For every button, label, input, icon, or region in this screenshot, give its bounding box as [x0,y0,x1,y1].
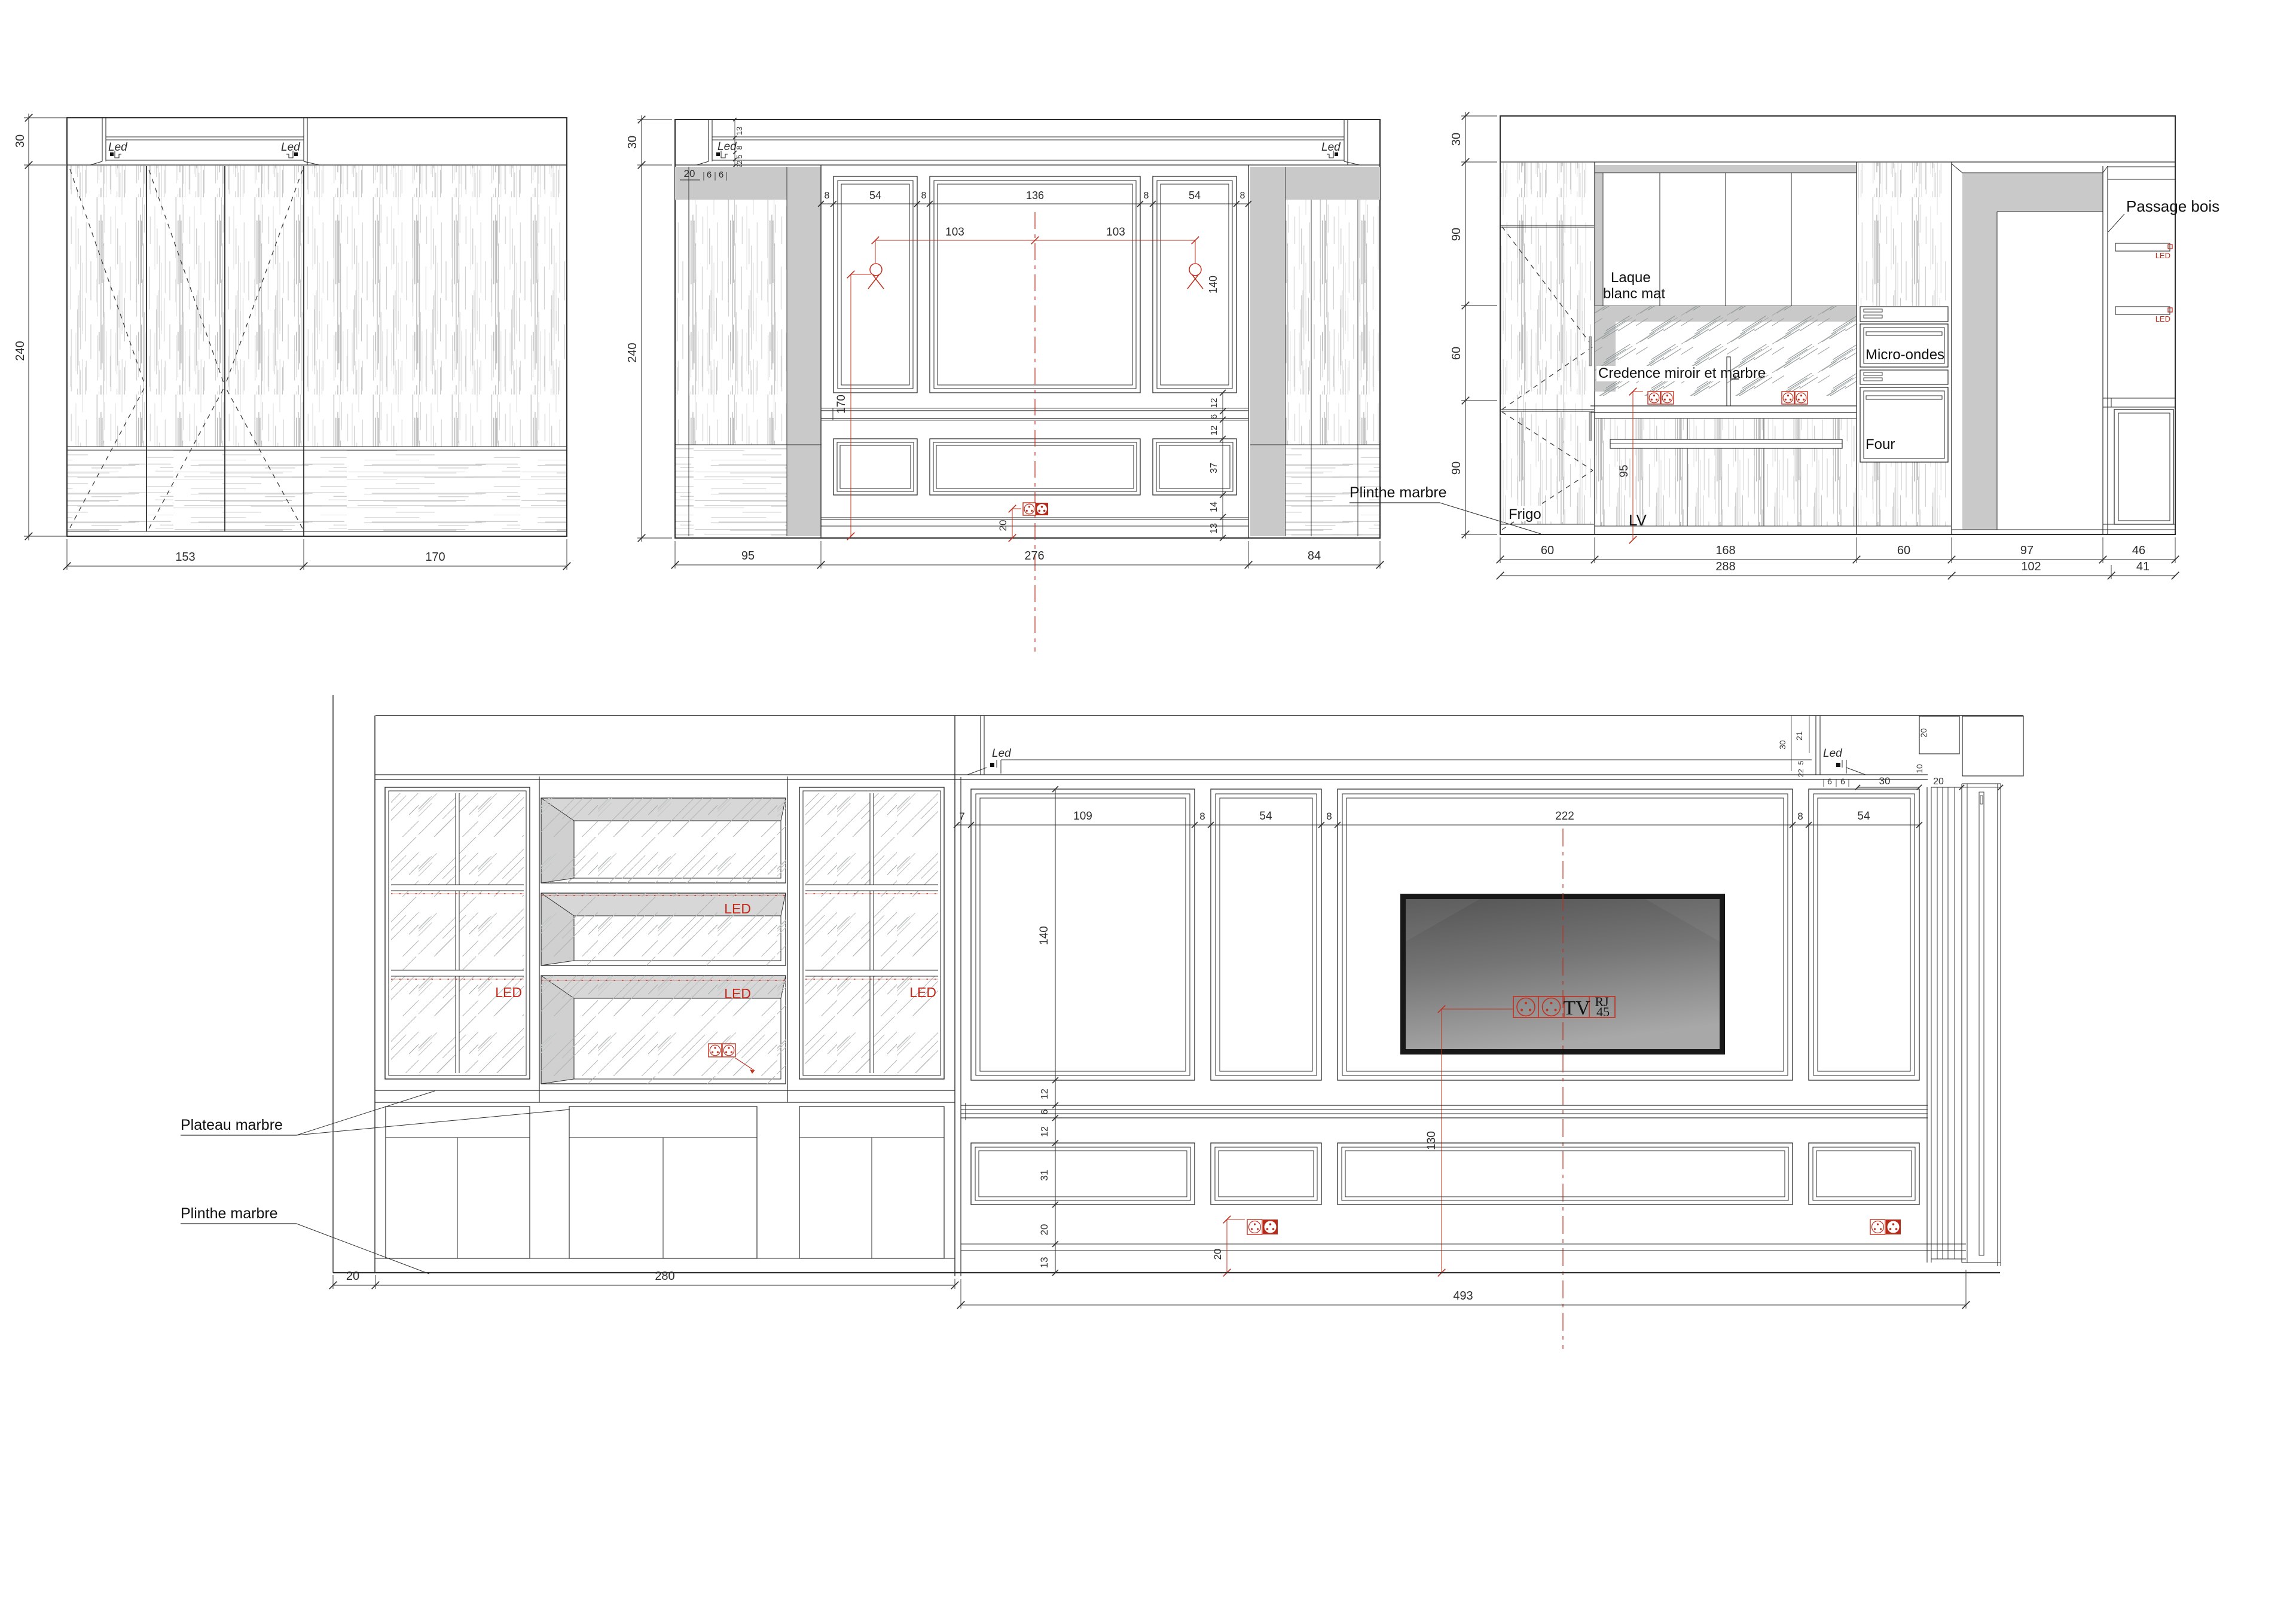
svg-text:10: 10 [1915,764,1924,774]
svg-text:8: 8 [1199,811,1205,822]
svg-text:6: 6 [707,170,712,180]
svg-text:Led: Led [1321,141,1341,154]
svg-text:30: 30 [1450,133,1463,146]
svg-text:288: 288 [1715,560,1735,573]
svg-text:Passage bois: Passage bois [2126,197,2219,215]
svg-text:276: 276 [1024,549,1044,563]
svg-text:168: 168 [1715,544,1735,557]
svg-text:20: 20 [1933,777,1944,787]
svg-text:Led: Led [992,747,1012,760]
svg-text:12: 12 [1040,1089,1050,1099]
svg-text:60: 60 [1450,347,1463,360]
svg-text:30: 30 [1778,740,1787,750]
svg-text:Led: Led [1823,747,1843,760]
svg-text:41: 41 [2136,560,2150,573]
svg-text:LV: LV [1629,511,1647,529]
svg-text:103: 103 [945,226,964,239]
svg-text:103: 103 [1106,226,1125,239]
svg-text:8: 8 [1144,191,1149,201]
svg-text:5: 5 [735,154,744,158]
svg-text:Led: Led [108,141,128,154]
svg-text:240: 240 [14,341,27,360]
svg-text:222: 222 [1555,810,1574,823]
svg-text:140: 140 [1038,926,1051,945]
svg-text:280: 280 [655,1270,674,1283]
svg-text:54: 54 [1857,810,1870,823]
svg-text:Plinthe marbre: Plinthe marbre [181,1205,278,1222]
svg-text:30: 30 [1879,775,1891,787]
svg-text:6: 6 [1040,1109,1050,1114]
svg-text:20: 20 [1039,1224,1050,1236]
svg-text:31: 31 [1039,1170,1050,1181]
svg-text:Plateau marbre: Plateau marbre [181,1117,283,1133]
svg-text:30: 30 [14,135,27,148]
svg-text:30: 30 [626,136,639,149]
svg-text:20: 20 [346,1270,359,1283]
svg-text:240: 240 [626,343,639,362]
svg-text:97: 97 [2020,544,2034,557]
svg-text:20: 20 [684,168,695,179]
svg-text:6: 6 [1840,777,1845,786]
svg-text:95: 95 [1618,464,1631,477]
svg-text:95: 95 [741,549,755,563]
svg-text:109: 109 [1073,810,1092,823]
svg-text:8: 8 [735,145,744,149]
svg-text:8: 8 [1240,191,1245,201]
svg-text:12: 12 [1040,1126,1050,1137]
svg-text:20: 20 [1212,1249,1223,1260]
svg-text:14: 14 [1209,502,1219,512]
svg-text:102: 102 [2021,560,2041,573]
svg-text:Led: Led [281,141,301,154]
svg-text:Four: Four [1865,436,1895,453]
svg-text:21: 21 [1794,731,1804,741]
svg-text:37: 37 [1209,463,1219,473]
svg-text:170: 170 [425,551,445,564]
svg-text:TV: TV [1563,997,1590,1019]
svg-text:60: 60 [1897,544,1910,557]
svg-text:LED: LED [2155,314,2170,323]
svg-text:8: 8 [921,191,927,201]
svg-text:LED: LED [2155,251,2170,260]
svg-text:60: 60 [1541,544,1554,557]
svg-text:22: 22 [1797,769,1805,777]
svg-text:LED: LED [724,986,751,1001]
svg-text:LED: LED [724,901,751,916]
svg-text:493: 493 [1453,1289,1473,1303]
svg-text:Credence miroir et marbre: Credence miroir et marbre [1598,365,1766,381]
svg-text:12: 12 [1209,398,1219,408]
svg-text:LED: LED [495,985,522,1000]
svg-text:20: 20 [997,520,1009,531]
svg-text:170: 170 [835,395,848,414]
svg-text:54: 54 [869,189,881,201]
svg-text:6: 6 [1827,777,1832,786]
svg-text:8: 8 [1326,811,1332,822]
svg-text:20: 20 [1919,728,1928,738]
svg-text:Laque: Laque [1611,270,1651,286]
svg-text:45: 45 [1596,1004,1610,1019]
svg-text:LED: LED [909,985,936,1000]
svg-text:blanc mat: blanc mat [1603,286,1665,302]
svg-text:13: 13 [735,127,744,135]
svg-text:Frigo: Frigo [1509,506,1541,522]
svg-text:90: 90 [1450,228,1463,241]
svg-text:90: 90 [1450,461,1463,475]
svg-text:54: 54 [1259,810,1272,823]
svg-text:6: 6 [719,170,723,180]
svg-text:13: 13 [1039,1257,1050,1269]
svg-text:8: 8 [1797,811,1803,822]
svg-text:140: 140 [1207,276,1219,294]
svg-text:8: 8 [825,191,830,201]
svg-text:46: 46 [2132,544,2145,557]
svg-text:54: 54 [1189,189,1201,201]
svg-text:Plinthe marbre: Plinthe marbre [1349,484,1447,501]
svg-text:6: 6 [1209,414,1219,419]
svg-text:5: 5 [1797,760,1805,765]
svg-text:84: 84 [1308,549,1321,563]
svg-text:12: 12 [1209,426,1219,436]
svg-text:Micro-ondes: Micro-ondes [1865,347,1944,363]
svg-text:136: 136 [1026,189,1044,201]
svg-text:7: 7 [959,811,964,822]
svg-text:13: 13 [1209,523,1219,534]
svg-text:153: 153 [175,551,195,564]
